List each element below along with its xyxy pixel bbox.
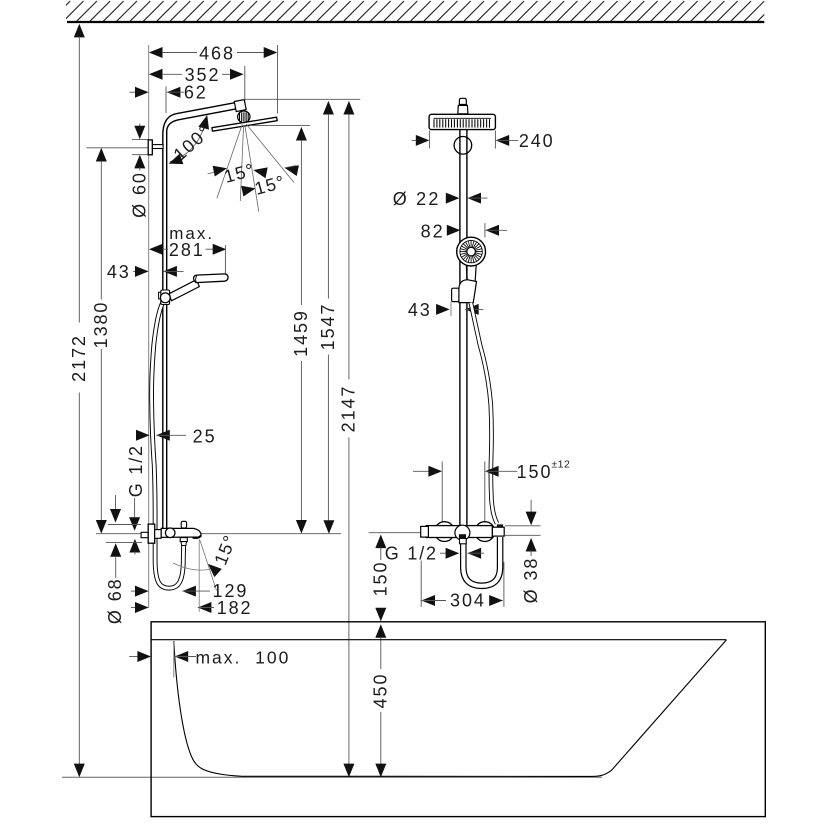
- svg-text:281: 281: [169, 240, 205, 260]
- svg-text:150: 150: [517, 462, 553, 482]
- svg-text:1380: 1380: [91, 301, 111, 349]
- svg-text:43: 43: [408, 300, 432, 320]
- svg-text:1459: 1459: [291, 309, 311, 357]
- svg-text:304: 304: [450, 591, 486, 611]
- svg-text:150: 150: [371, 561, 391, 597]
- svg-text:450: 450: [371, 673, 391, 709]
- svg-text:240: 240: [519, 131, 555, 151]
- svg-text:Ø 38: Ø 38: [521, 557, 541, 604]
- svg-text:82: 82: [421, 221, 445, 241]
- svg-text:25: 25: [193, 426, 217, 446]
- svg-text:2172: 2172: [69, 334, 89, 382]
- svg-text:Ø 68: Ø 68: [105, 577, 125, 624]
- svg-text:Ø 60: Ø 60: [129, 171, 149, 218]
- svg-text:max. 100: max. 100: [195, 647, 290, 667]
- svg-text:G 1/2: G 1/2: [385, 543, 438, 563]
- svg-text:±12: ±12: [551, 459, 570, 471]
- svg-text:Ø 22: Ø 22: [393, 189, 441, 209]
- svg-text:G 1/2: G 1/2: [126, 444, 146, 497]
- svg-text:1547: 1547: [318, 303, 338, 351]
- svg-text:468: 468: [199, 44, 235, 64]
- svg-text:2147: 2147: [338, 385, 358, 433]
- svg-text:62: 62: [184, 83, 208, 103]
- svg-text:182: 182: [217, 598, 253, 618]
- svg-text:43: 43: [107, 262, 131, 282]
